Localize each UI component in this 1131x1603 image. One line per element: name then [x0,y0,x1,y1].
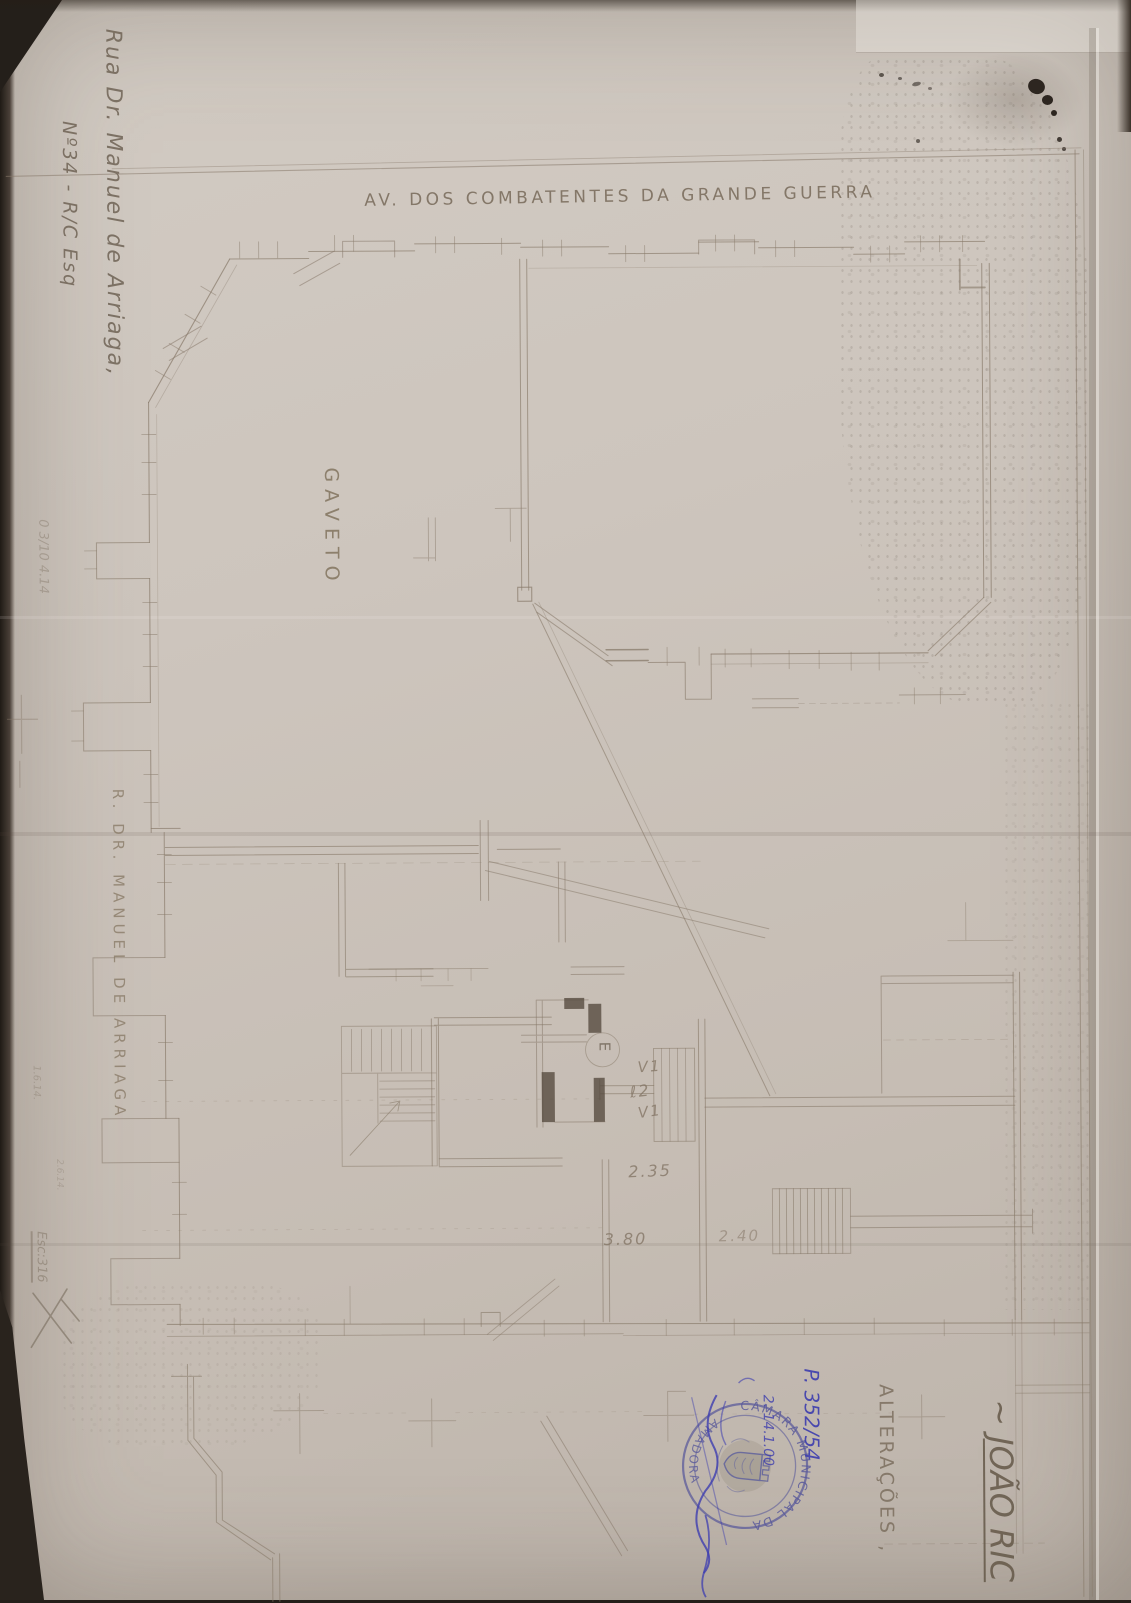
owner-title-name: JOÃO RIC [982,1436,1021,1582]
margin-note-a: 1.6.14. [31,1065,42,1100]
owner-title: ~JOÃO RIC [982,1399,1021,1582]
dimension-240: 2.40 [718,1226,760,1245]
margin-scale-note: Esc:316 [34,1231,49,1282]
shaft-label: ℓ2 [629,1080,652,1101]
owner-title-tilde: ~ [982,1399,1020,1426]
street-label-left: R. DR. MANUEL DE ARRIAGA [109,789,129,1121]
floor-plan: CÂMARA MUNICIPAL DA AMADORA AV. DOS COMB… [0,0,1131,1603]
process-number: P. 352/54 [799,1368,824,1461]
scanned-plan-page: { "drawing": { "street_top_label": "AV. … [0,0,1131,1600]
pencil-lines [4,148,1092,1603]
process-date: 2. 14.1.00 [760,1395,776,1466]
floor-plan-linework: CÂMARA MUNICIPAL DA AMADORA [0,0,1131,1603]
poche-walls [541,998,605,1122]
address-note-line1: Rua Dr. Manuel de Arriaga, [100,29,127,377]
address-note-line2: Nº34 - R/C Esq [58,121,81,288]
window-label-lower: V1 [637,1101,663,1122]
stamp-arc-bottom-text: AMADORA [684,1414,723,1489]
alterations-label: ALTERAÇÕES , [875,1384,898,1554]
dimension-235: 2.35 [628,1161,672,1182]
margin-note-b: 2.6.14. [54,1159,64,1191]
stamp-arc-bottom: AMADORA [684,1414,723,1489]
corner-label-gaveto: GAVETO [320,467,343,587]
window-label-upper: V1 [637,1057,662,1077]
entrance-label: E [595,1042,613,1052]
dimension-380: 3.80 [603,1229,647,1249]
margin-note-top: 0 3/10 4.14 [35,519,50,594]
